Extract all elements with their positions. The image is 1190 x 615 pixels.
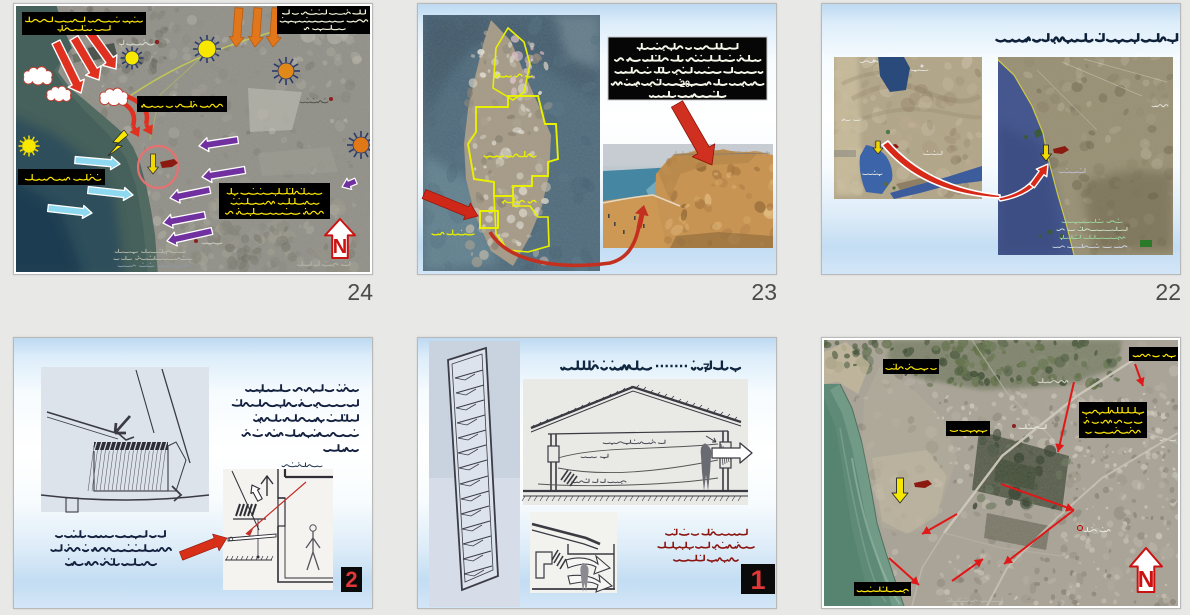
- svg-text:N: N: [1138, 566, 1155, 592]
- svg-text:1: 1: [750, 565, 765, 595]
- svg-text:7: 7: [703, 361, 710, 375]
- svg-text:N: N: [333, 236, 347, 258]
- svg-text:2: 2: [345, 567, 357, 592]
- svg-text:20: 20: [680, 79, 690, 89]
